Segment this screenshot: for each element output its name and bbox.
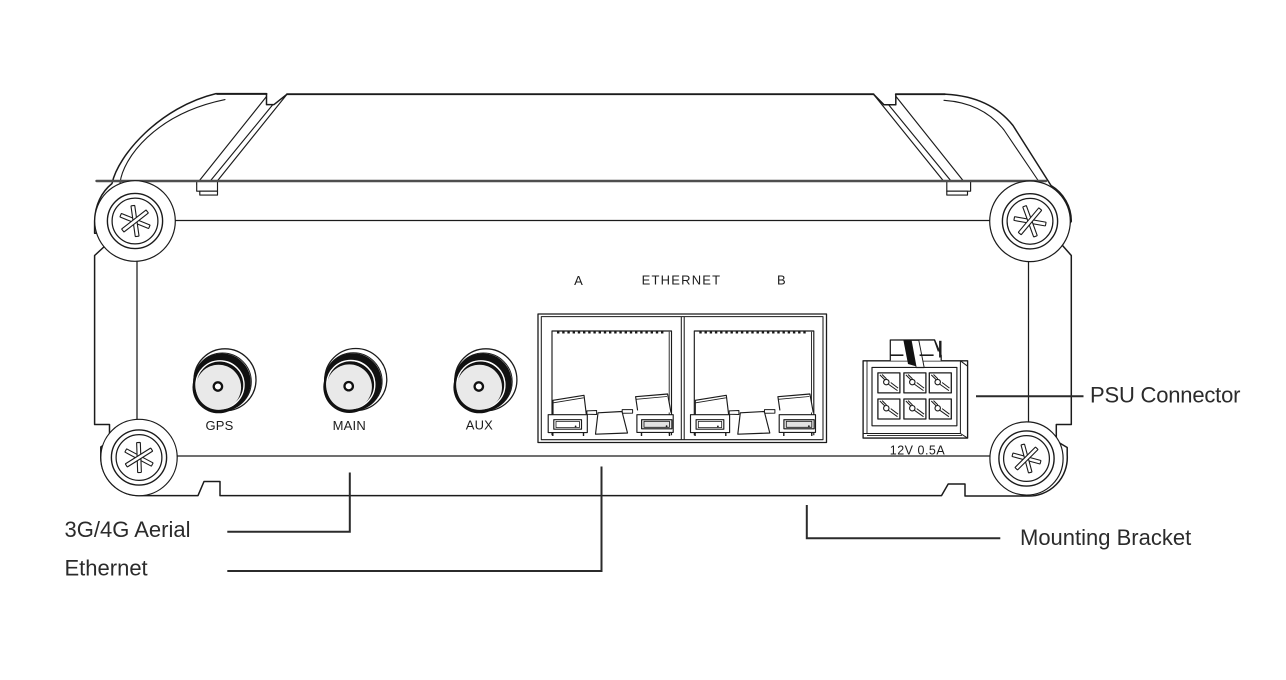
svg-text:B: B [777,273,786,288]
svg-text:3G/4G Aerial: 3G/4G Aerial [65,517,191,542]
svg-text:AUX: AUX [466,418,493,433]
svg-text:MAIN: MAIN [333,418,366,433]
svg-text:PSU Connector: PSU Connector [1090,383,1240,408]
svg-text:Mounting Bracket: Mounting Bracket [1020,525,1191,550]
svg-text:Ethernet: Ethernet [65,555,148,580]
svg-text:GPS: GPS [205,418,233,433]
svg-text:A: A [574,273,583,288]
svg-text:12V 0.5A: 12V 0.5A [890,444,946,458]
svg-text:ETHERNET: ETHERNET [642,273,722,288]
